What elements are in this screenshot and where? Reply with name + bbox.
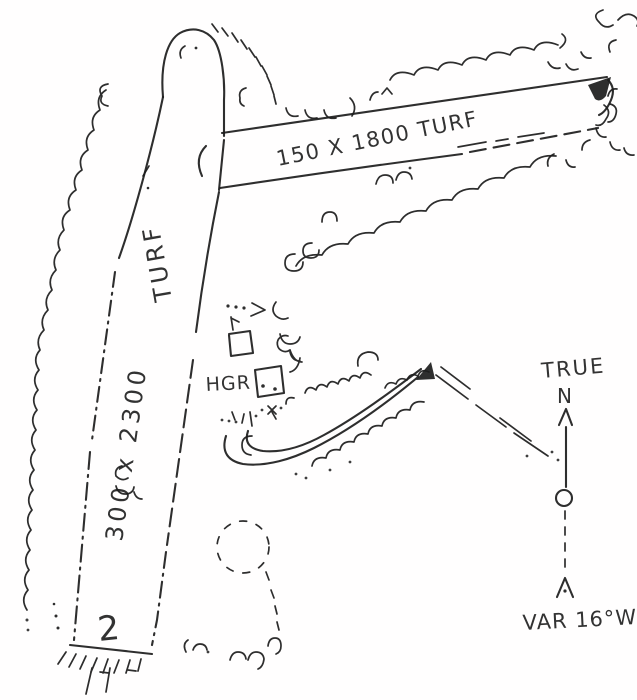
airfield-sketch-map: TURF 300 x 2300 2 150 X 1800 TURF HGR — [0, 0, 637, 700]
paper-background — [0, 0, 637, 700]
north-label: N — [557, 384, 572, 408]
hangar-label: HGR — [205, 372, 251, 396]
runway-number: 2 — [96, 608, 122, 650]
sketch-canvas: TURF 300 x 2300 2 150 X 1800 TURF HGR — [0, 0, 637, 700]
